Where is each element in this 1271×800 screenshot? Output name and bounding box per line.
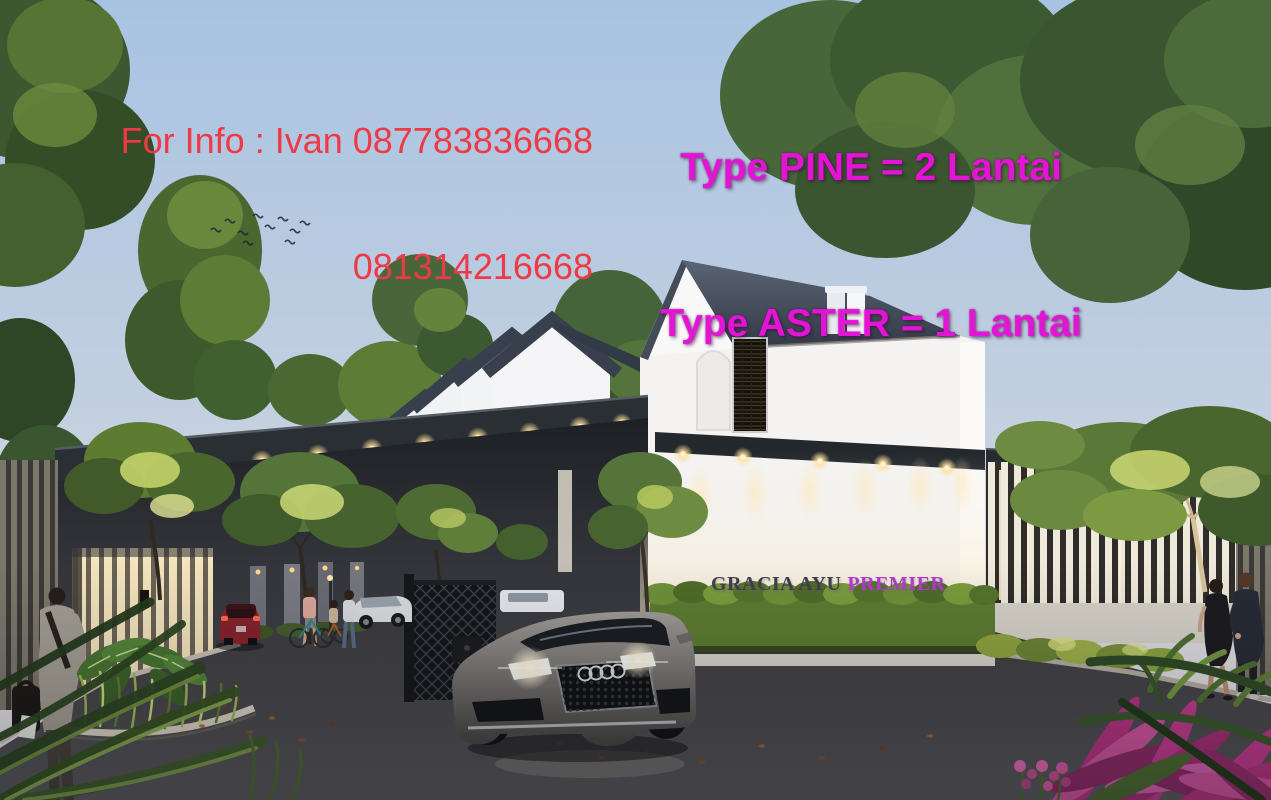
contact-line1: For Info : Ivan 087783836668 <box>104 120 593 162</box>
estate-sign: GRACIA AYUPREMIER <box>700 550 930 596</box>
unit-type-overlay: Type PINE = 2 Lantai Type ASTER = 1 Lant… <box>640 38 1102 402</box>
unit-type-line1: Type PINE = 2 Lantai <box>640 142 1102 194</box>
contact-info-overlay: For Info : Ivan 087783836668 08131421666… <box>104 36 593 330</box>
contact-line2: 081314216668 <box>104 246 593 288</box>
estate-render-image: For Info : Ivan 087783836668 08131421666… <box>0 0 1271 800</box>
estate-sign-suffix: PREMIER <box>847 573 945 595</box>
estate-sign-name: GRACIA AYU <box>711 573 841 595</box>
unit-type-line2: Type ASTER = 1 Lantai <box>640 298 1102 350</box>
